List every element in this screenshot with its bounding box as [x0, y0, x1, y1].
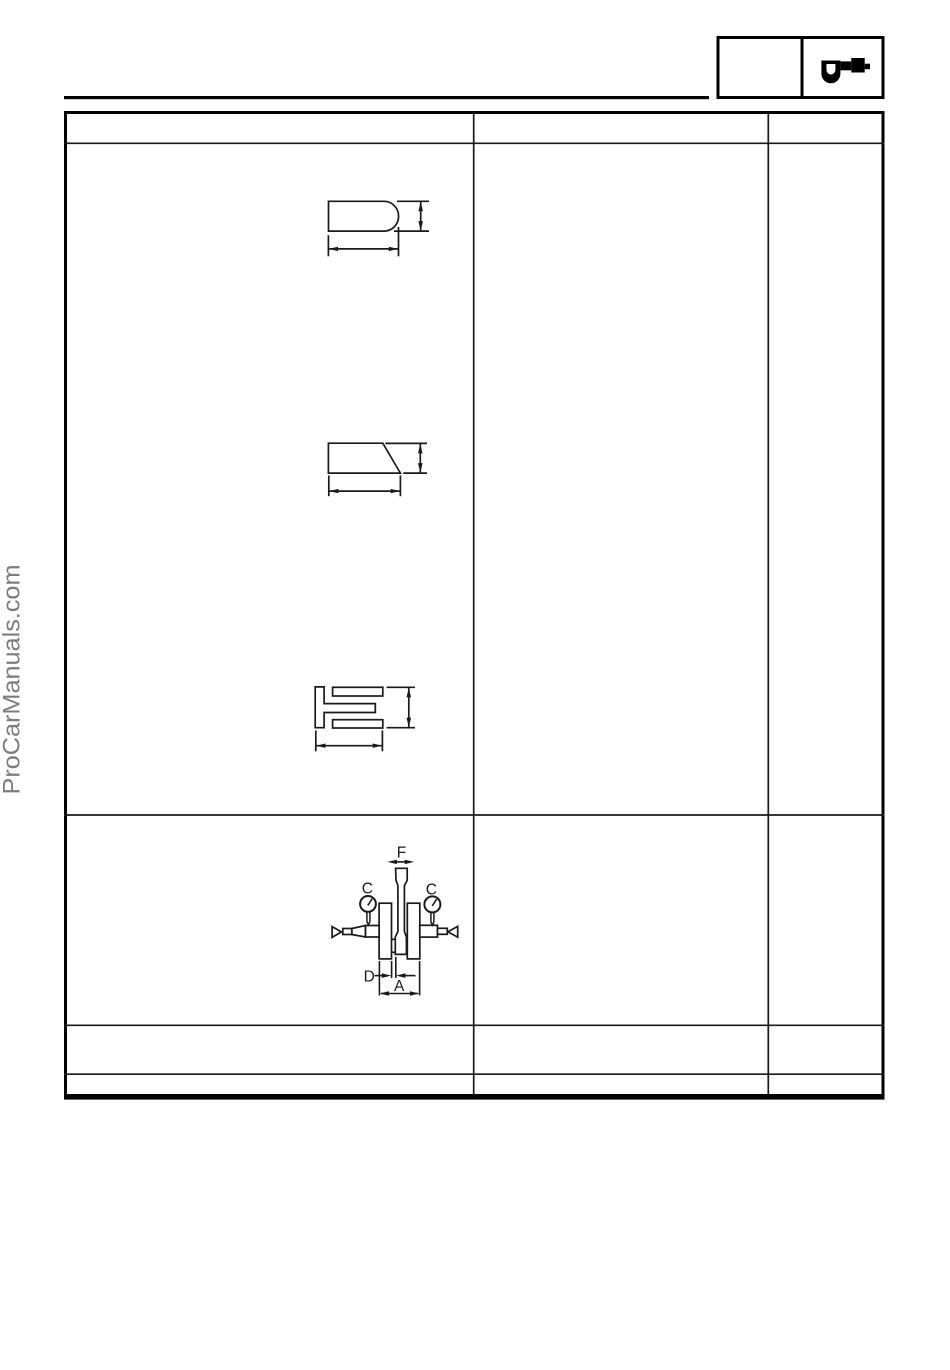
- svg-text:ProCarManuals.com: ProCarManuals.com: [0, 565, 26, 795]
- svg-text:C: C: [362, 880, 373, 897]
- svg-text:F: F: [397, 844, 406, 861]
- svg-text:D: D: [364, 969, 375, 986]
- svg-text:C: C: [426, 881, 437, 898]
- svg-text:A: A: [394, 978, 405, 995]
